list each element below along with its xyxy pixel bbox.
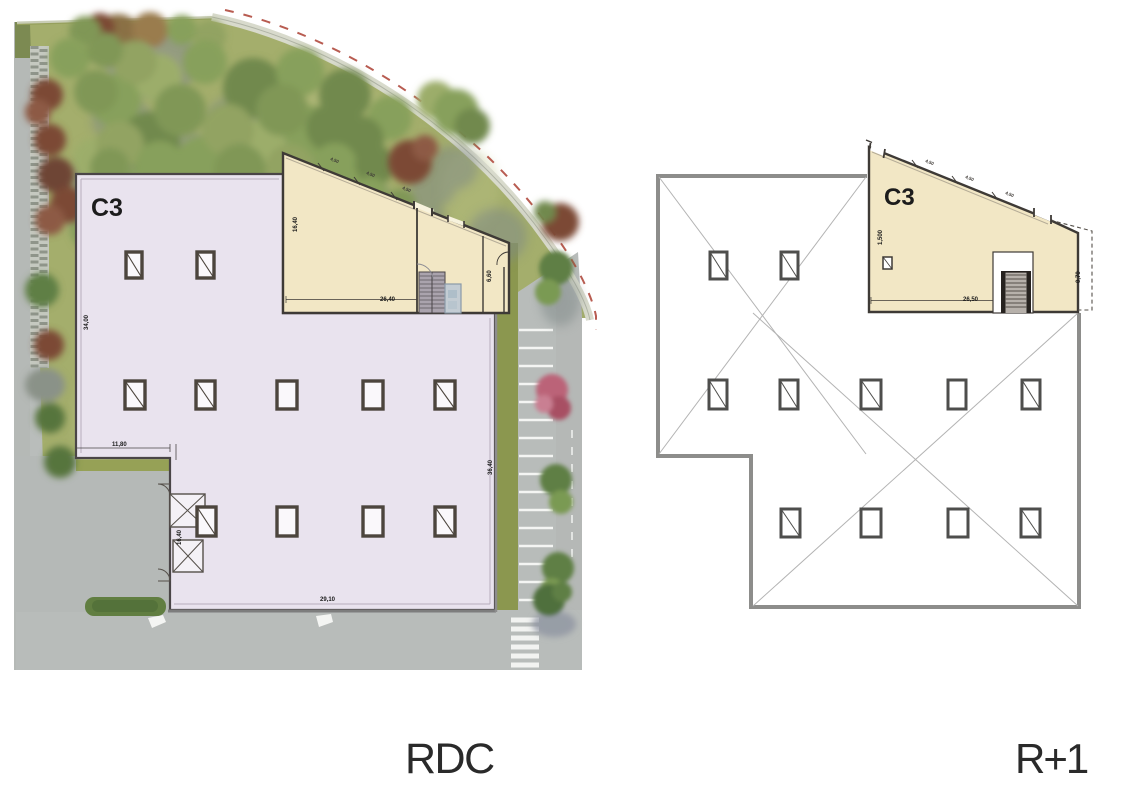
svg-text:29,10: 29,10 [320,597,336,603]
svg-text:6,60: 6,60 [487,270,493,282]
svg-text:36,40: 36,40 [488,459,494,475]
svg-text:RDC: RDC [405,735,494,783]
svg-text:16,40: 16,40 [177,529,183,545]
svg-text:1,500: 1,500 [878,229,884,245]
svg-text:4,50: 4,50 [1005,190,1015,198]
svg-text:26,40: 26,40 [380,297,396,303]
svg-text:4,50: 4,50 [925,158,935,166]
svg-text:4,50: 4,50 [965,174,975,182]
svg-text:0,70: 0,70 [1076,271,1082,283]
svg-text:11,80: 11,80 [112,442,127,448]
svg-text:34,00: 34,00 [84,314,90,330]
svg-text:R+1: R+1 [1015,735,1088,782]
svg-text:C3: C3 [91,194,123,222]
svg-text:C3: C3 [884,184,915,211]
svg-text:16,40: 16,40 [293,216,299,232]
svg-text:26,50: 26,50 [963,297,979,303]
